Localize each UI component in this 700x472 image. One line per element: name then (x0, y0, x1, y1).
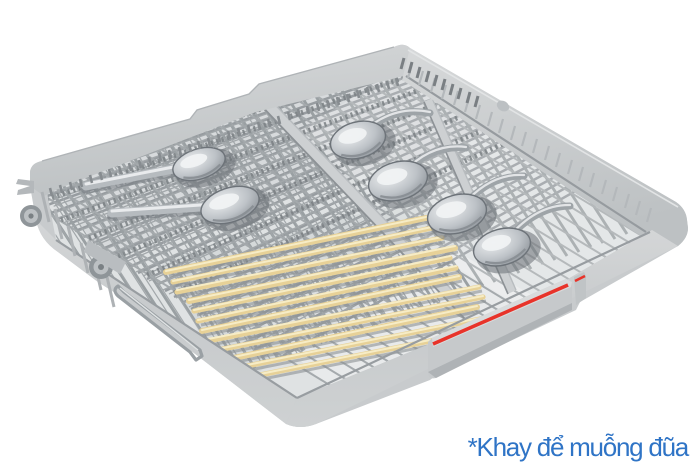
svg-text:*Khay để muỗng đũa: *Khay để muỗng đũa (468, 432, 690, 462)
